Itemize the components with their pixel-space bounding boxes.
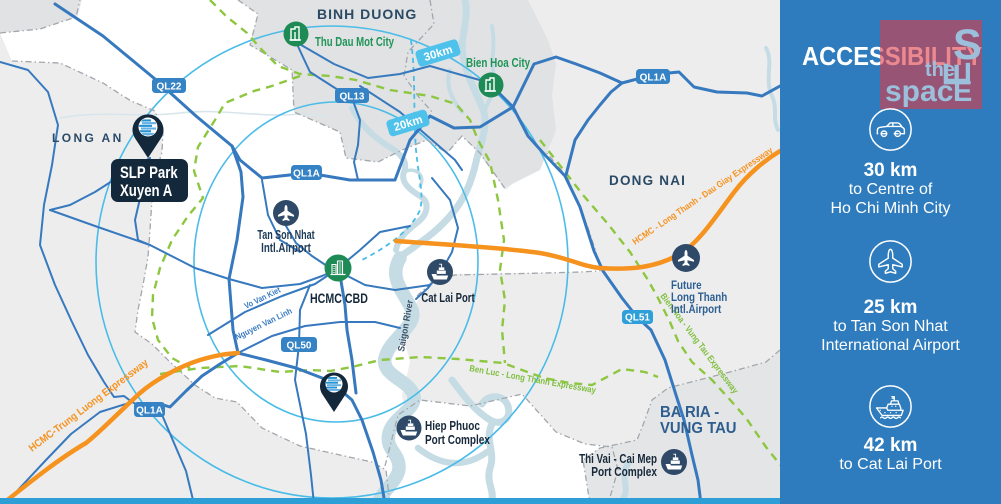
svg-text:BINH DUONG: BINH DUONG <box>317 6 417 22</box>
svg-text:Tan Son Nhat: Tan Son Nhat <box>257 229 315 243</box>
svg-text:QL51: QL51 <box>625 313 650 324</box>
svg-text:QL1A: QL1A <box>136 406 163 417</box>
svg-text:Xuyen A: Xuyen A <box>120 182 172 201</box>
svg-text:Thu Dau Mot City: Thu Dau Mot City <box>315 36 395 49</box>
svg-text:QL50: QL50 <box>286 341 311 352</box>
svg-text:QL13: QL13 <box>339 92 364 103</box>
svg-text:Bien Hoa City: Bien Hoa City <box>466 57 531 70</box>
svg-text:BA RIA -: BA RIA - <box>660 404 719 422</box>
svg-text:Intl.Airport: Intl.Airport <box>261 242 311 255</box>
svg-text:QL22: QL22 <box>156 82 181 93</box>
svg-text:VUNG TAU: VUNG TAU <box>660 420 737 438</box>
svg-text:DONG NAI: DONG NAI <box>609 173 686 188</box>
svg-text:HCMC CBD: HCMC CBD <box>310 291 368 307</box>
svg-text:Thi Vai - Cai Mep: Thi Vai - Cai Mep <box>579 453 657 466</box>
svg-text:Hiep Phuoc: Hiep Phuoc <box>425 420 480 433</box>
svg-text:LONG AN: LONG AN <box>52 131 124 145</box>
svg-text:Port Complex: Port Complex <box>425 434 491 447</box>
svg-text:SLP Park: SLP Park <box>120 164 178 183</box>
svg-text:Port Complex: Port Complex <box>591 466 657 479</box>
svg-text:Intl.Airport: Intl.Airport <box>671 303 722 316</box>
svg-text:QL1A: QL1A <box>293 169 320 180</box>
svg-text:QL1A: QL1A <box>640 73 667 84</box>
svg-text:Cat Lai Port: Cat Lai Port <box>421 292 475 306</box>
